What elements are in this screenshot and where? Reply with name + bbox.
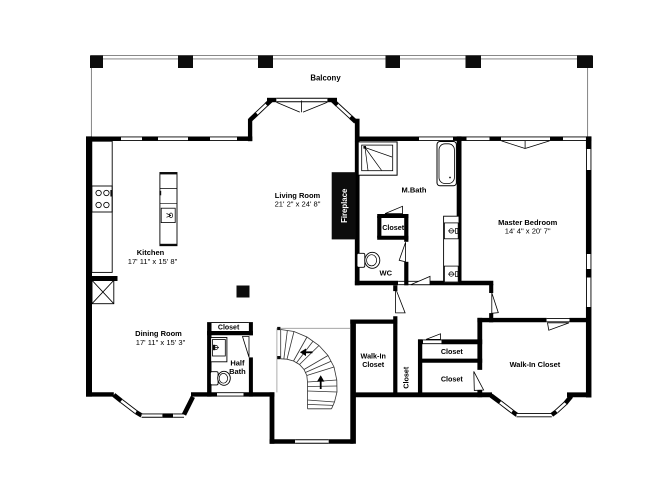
svg-text:Dining Room: Dining Room xyxy=(135,329,182,338)
svg-text:Closet: Closet xyxy=(441,347,464,356)
svg-text:Closet: Closet xyxy=(441,375,464,384)
svg-text:Balcony: Balcony xyxy=(310,73,341,82)
svg-text:Fireplace: Fireplace xyxy=(340,188,349,223)
svg-text:Closet: Closet xyxy=(382,223,405,232)
svg-text:14' 4" x 20' 7": 14' 4" x 20' 7" xyxy=(505,227,551,236)
svg-text:Closet: Closet xyxy=(401,366,410,389)
svg-text:WC: WC xyxy=(380,269,393,278)
svg-text:21' 2" x 24' 8": 21' 2" x 24' 8" xyxy=(275,200,321,209)
svg-text:Walk-In Closet: Walk-In Closet xyxy=(510,360,561,369)
svg-text:Living Room: Living Room xyxy=(275,191,321,200)
svg-text:17' 11" x 15' 3": 17' 11" x 15' 3" xyxy=(136,338,186,347)
svg-text:Closet: Closet xyxy=(218,325,240,332)
svg-text:Bath: Bath xyxy=(229,367,246,376)
svg-text:Closet: Closet xyxy=(362,360,385,369)
svg-text:17' 11" x 15' 8": 17' 11" x 15' 8" xyxy=(128,257,178,266)
svg-text:Master Bedroom: Master Bedroom xyxy=(498,218,558,227)
svg-text:M.Bath: M.Bath xyxy=(402,185,427,194)
